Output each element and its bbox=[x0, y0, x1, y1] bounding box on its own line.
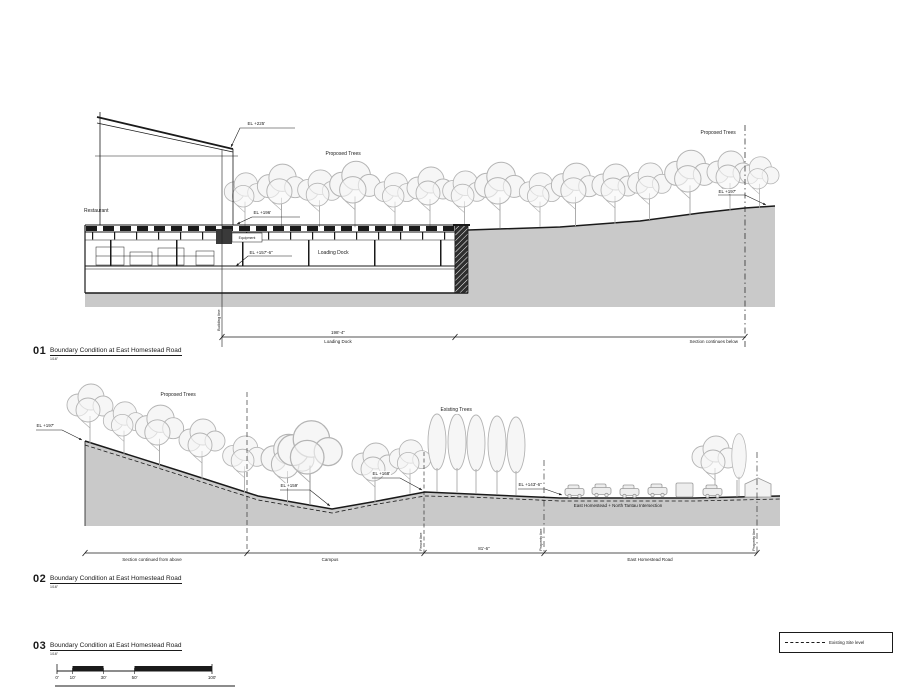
proposed-trees-label-2: Proposed Trees bbox=[700, 131, 736, 137]
drawing-02-scale: 1/16" bbox=[50, 585, 58, 589]
proposed-trees-label-1: Proposed Trees bbox=[325, 152, 361, 158]
truck-outline bbox=[676, 483, 693, 497]
legend-box: Existing Site level bbox=[779, 632, 893, 653]
drawing-sheet: Restaurant Proposed Trees EL +225' EL +1… bbox=[0, 0, 899, 688]
property-line-label-1: Property line bbox=[539, 529, 544, 551]
drawing-02-title: Boundary Condition at East Homestead Roa… bbox=[50, 575, 182, 584]
existing-trees-label: Existing Trees bbox=[440, 408, 472, 414]
scalebar-tick-100: 100' bbox=[202, 675, 222, 680]
drawing-01-scale: 1/16" bbox=[50, 357, 58, 361]
proposed-trees-label-3: Proposed Trees bbox=[160, 393, 196, 399]
drawing-01-titleblock: 01 Boundary Condition at East Homestead … bbox=[33, 345, 253, 367]
dashed-line-sample bbox=[785, 642, 825, 643]
fence-line-label: Fence line bbox=[419, 533, 424, 551]
drawing-03-scale: 1/16" bbox=[50, 652, 58, 656]
scalebar-tick-10: 10' bbox=[63, 675, 83, 680]
section-continues-below-label: Section continues below bbox=[650, 339, 738, 344]
el-plaza-label: EL +196' bbox=[253, 210, 272, 215]
drawing-03-titleblock: 03 Boundary Condition at East Homestead … bbox=[33, 640, 253, 662]
scalebar-tick-30: 30' bbox=[94, 675, 114, 680]
seg-continued-label: Section continued from above bbox=[92, 557, 212, 562]
vehicles-and-structures bbox=[565, 478, 771, 498]
drawing-03-title: Boundary Condition at East Homestead Roa… bbox=[50, 642, 182, 651]
loading-dock-room-label: Loading Dock bbox=[318, 251, 349, 257]
scale-bar bbox=[57, 664, 212, 674]
el-left-label: EL +197' bbox=[36, 423, 55, 428]
building-line-label: Building line bbox=[217, 309, 222, 331]
drawing-01-title: Boundary Condition at East Homestead Roa… bbox=[50, 347, 182, 356]
dim-caption-label: Loading Dock bbox=[312, 339, 364, 344]
el-road-label: EL +143'-6" bbox=[518, 482, 542, 487]
legend-existing-site-level: Existing Site level bbox=[829, 640, 864, 645]
restaurant-label: Restaurant bbox=[84, 209, 108, 215]
el-dip-label: EL +159' bbox=[280, 483, 299, 488]
el-dock-label: EL +157'-6" bbox=[249, 250, 273, 255]
drawing-02-number: 02 bbox=[33, 573, 46, 585]
el-grade-right-label: EL +197' bbox=[718, 189, 737, 194]
el-roof-label: EL +225' bbox=[247, 121, 266, 126]
property-line-label-2: Property line bbox=[752, 529, 757, 551]
dim-length-label: 198'-4" bbox=[315, 330, 361, 335]
seg-campus-label: Campus bbox=[290, 557, 370, 562]
drawing-03-number: 03 bbox=[33, 640, 46, 652]
dim-road-label: 81'-6" bbox=[464, 546, 504, 551]
small-building-outline bbox=[745, 478, 771, 497]
seg-road-label: East Homestead Road bbox=[590, 557, 710, 562]
drawing-02-titleblock: 02 Boundary Condition at East Homestead … bbox=[33, 573, 253, 595]
equipment-label: Equipment bbox=[233, 236, 261, 240]
intersection-label: East Homestead + North Tantau Intersecti… bbox=[528, 503, 708, 508]
el-knoll-label: EL +168' bbox=[372, 471, 391, 476]
scalebar-tick-50: 50' bbox=[125, 675, 145, 680]
drawing-01-number: 01 bbox=[33, 345, 46, 357]
